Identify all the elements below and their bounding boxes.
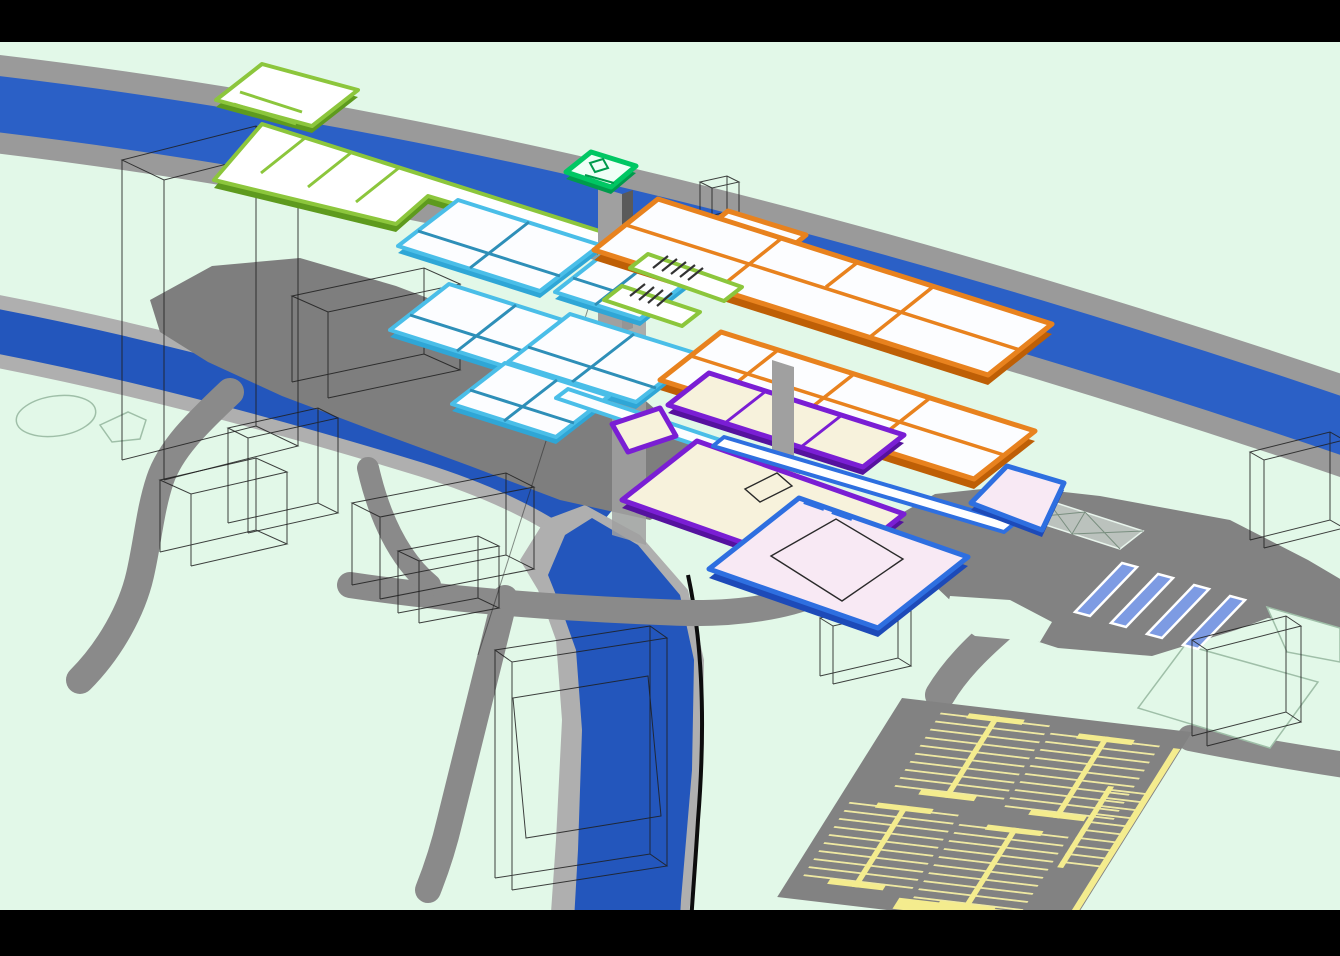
letterbox-bar-top: [0, 0, 1340, 42]
site-axonometric-diagram: [0, 0, 1340, 956]
letterbox-bar-bottom: [0, 910, 1340, 956]
diagram-canvas: [0, 0, 1340, 956]
